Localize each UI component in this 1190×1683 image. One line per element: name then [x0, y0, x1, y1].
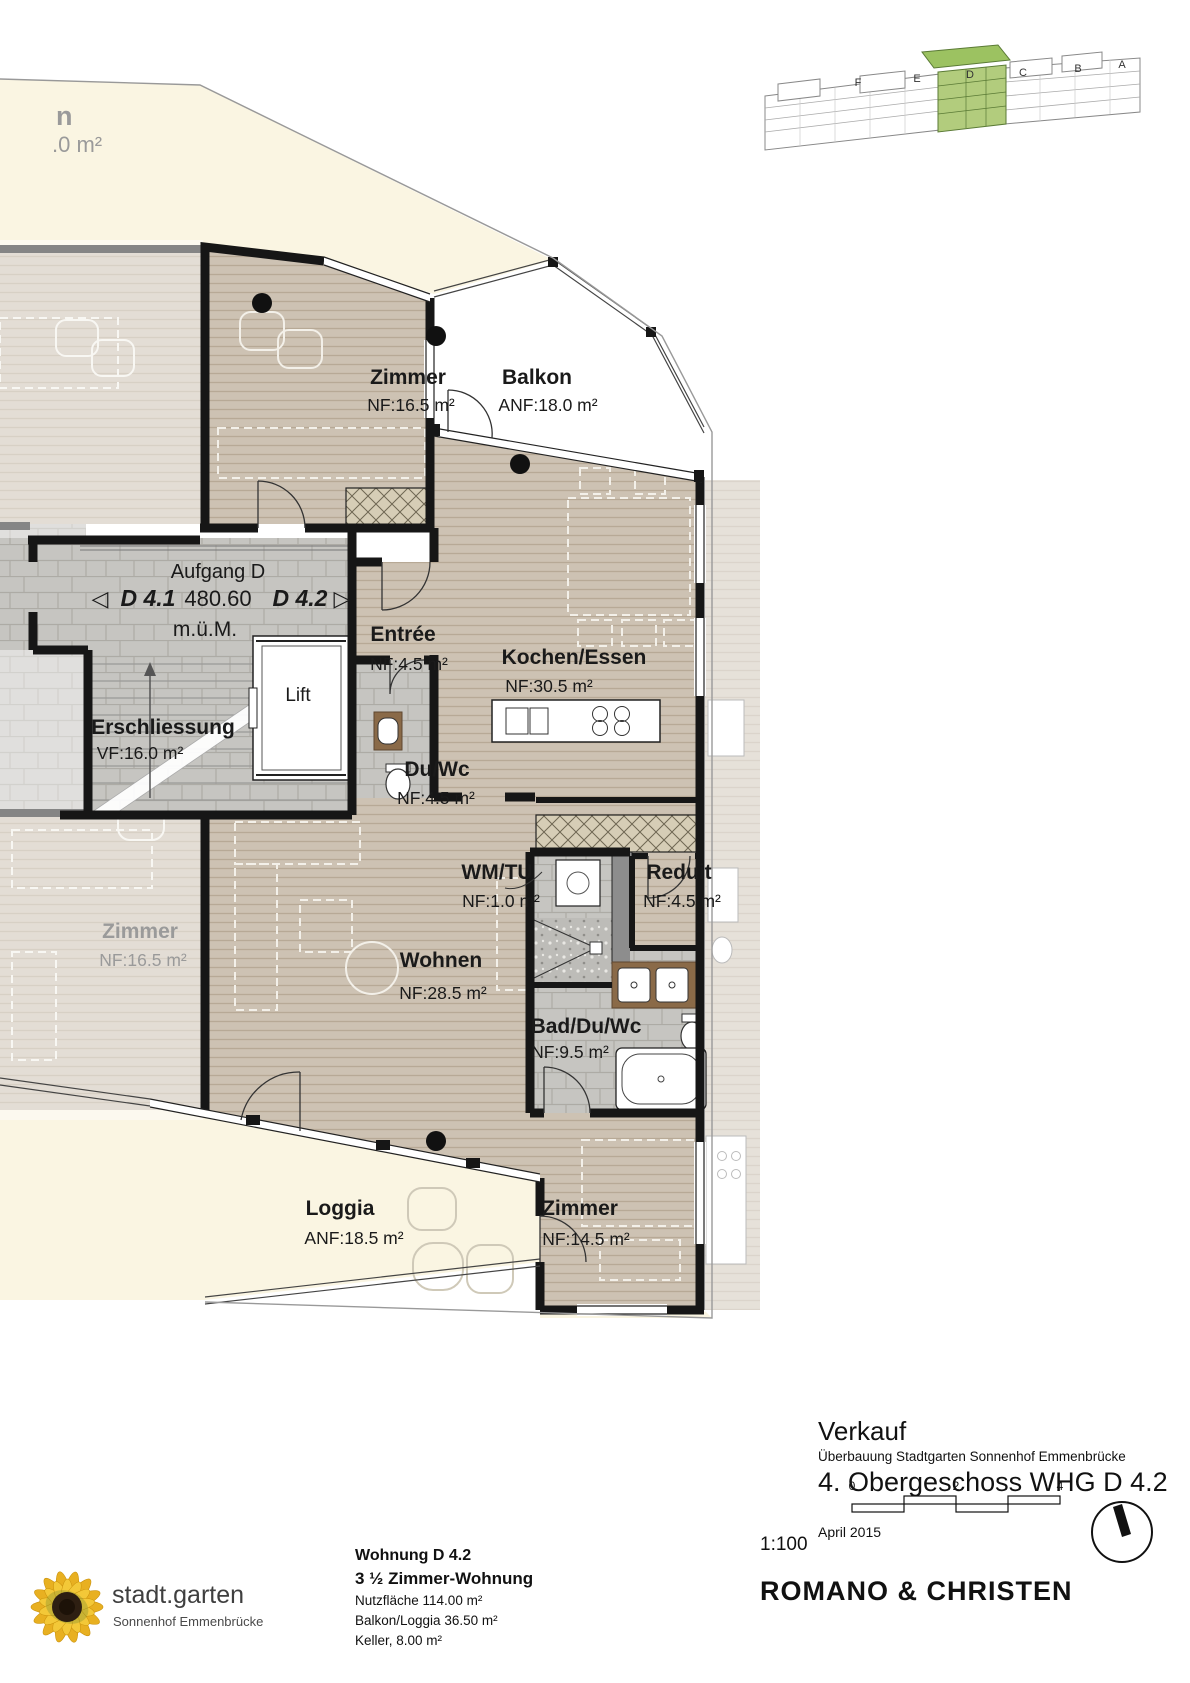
label-elevation: 480.60 [184, 586, 251, 611]
area-duwc: NF:4.5 m² [397, 788, 475, 808]
label-unit-right: D 4.2 [273, 585, 328, 611]
label-wohnen: Wohnen [400, 949, 482, 972]
label-bad: Bad/Du/Wc [531, 1015, 642, 1038]
block-letter-f: F [855, 77, 862, 89]
lift-cab [253, 636, 350, 780]
area-entree: NF:4.5 m² [370, 654, 448, 674]
label-zimmer-bottom: Zimmer [542, 1197, 618, 1220]
area-erschliessung: VF:16.0 m² [97, 743, 184, 763]
label-entree: Entrée [370, 623, 435, 646]
apartment-title: Wohnung D 4.2 [355, 1545, 533, 1567]
sunflower-logo-icon [31, 1570, 103, 1644]
apartment-line-nutzflaeche: Nutzfläche 114.00 m² [355, 1591, 533, 1611]
area-zimmer-left: NF:16.5 m² [99, 950, 187, 970]
floor-plan-drawing: n .0 m² Zimmer NF:16.5 m² Balkon ANF:18.… [0, 0, 1190, 1683]
north-arrow-icon [1092, 1502, 1152, 1562]
apartment-line-balkon: Balkon/Loggia 36.50 m² [355, 1611, 533, 1631]
label-lift: Lift [285, 685, 311, 706]
sheet-title: 4. Obergeschoss WHG D 4.2 [818, 1467, 1168, 1498]
area-kochen: NF:30.5 m² [505, 676, 593, 696]
area-wmtu: NF:1.0 m² [462, 891, 540, 911]
arrow-left: ◁ [92, 586, 109, 611]
block-letter-c: C [1019, 67, 1027, 79]
area-balkon: ANF:18.0 m² [498, 395, 597, 415]
logo-name: stadt.garten [112, 1581, 244, 1610]
block-letter-a: A [1118, 59, 1126, 71]
label-zimmer-top: Zimmer [370, 366, 446, 389]
sale-label: Verkauf [818, 1416, 906, 1447]
plan-scale: 1:100 [760, 1534, 808, 1556]
label-loggia: Loggia [306, 1197, 375, 1220]
area-loggia: ANF:18.5 m² [304, 1228, 403, 1248]
area-reduit: NF:4.5 m² [643, 891, 721, 911]
label-wmtu: WM/TU [461, 861, 532, 884]
adjacent-partial-area: .0 m² [52, 132, 102, 157]
plan-date: April 2015 [818, 1524, 881, 1540]
apartment-line-keller: Keller, 8.00 m² [355, 1631, 533, 1651]
block-letter-b: B [1074, 63, 1081, 75]
apartment-info: Wohnung D 4.2 3 ½ Zimmer-Wohnung Nutzflä… [355, 1545, 533, 1651]
label-zimmer-left: Zimmer [102, 920, 178, 943]
area-zimmer-top: NF:16.5 m² [367, 395, 455, 415]
project-name: Überbauung Stadtgarten Sonnenhof Emmenbr… [818, 1449, 1126, 1464]
logo-subtitle: Sonnenhof Emmenbrücke [113, 1614, 263, 1629]
label-aufgang: Aufgang D [171, 561, 266, 583]
arrow-right: ▷ [334, 586, 351, 611]
adjacent-partial-name: n [56, 101, 73, 131]
block-letter-d: D [966, 69, 974, 81]
label-unit-left: D 4.1 [121, 585, 176, 611]
label-duwc: Du/Wc [404, 758, 470, 781]
label-kochen: Kochen/Essen [502, 646, 647, 669]
building-key: F E D C B A [765, 45, 1140, 150]
area-wohnen: NF:28.5 m² [399, 983, 487, 1003]
label-balkon: Balkon [502, 366, 572, 389]
label-erschliessung: Erschliessung [91, 716, 235, 739]
architect-name: ROMANO & CHRISTEN [760, 1576, 1073, 1607]
apartment-type: 3 ½ Zimmer-Wohnung [355, 1567, 533, 1591]
label-reduit: Reduit [646, 861, 711, 884]
block-letter-e: E [913, 73, 920, 85]
area-zimmer-bottom: NF:14.5 m² [542, 1229, 630, 1249]
label-elevation-unit: m.ü.M. [173, 618, 237, 641]
area-bad: NF:9.5 m² [531, 1042, 609, 1062]
